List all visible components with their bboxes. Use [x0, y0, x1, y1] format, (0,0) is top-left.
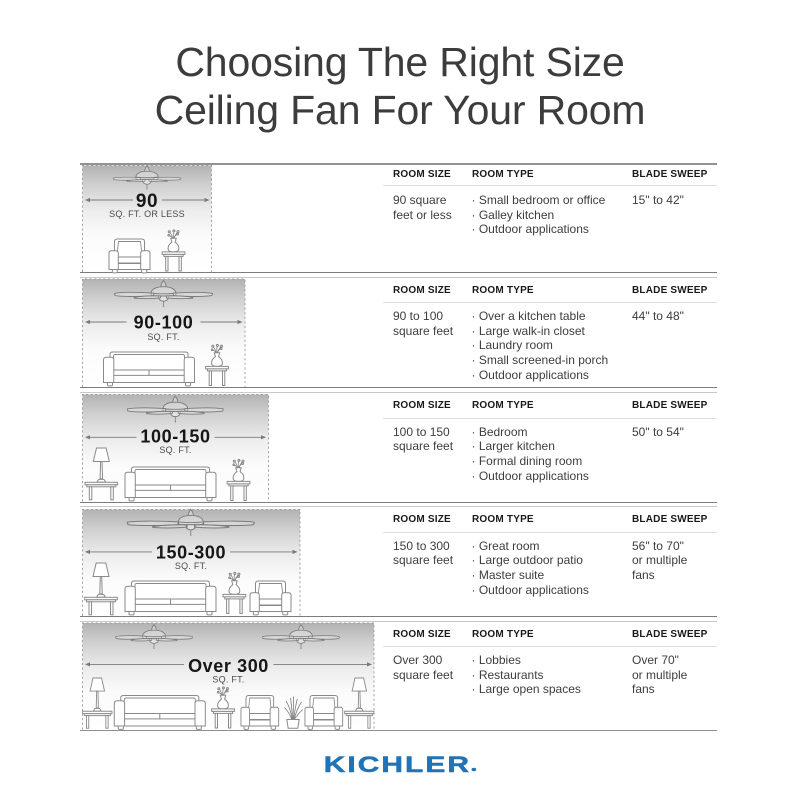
svg-text:Over 300: Over 300 [188, 656, 269, 676]
svg-text:SQ. FT.: SQ. FT. [147, 332, 179, 342]
svg-text:SQ. FT.: SQ. FT. [175, 561, 207, 571]
svg-text:150-300: 150-300 [156, 543, 226, 563]
svg-text:SQ. FT.: SQ. FT. [212, 675, 244, 685]
svg-text:SQ. FT.: SQ. FT. [159, 445, 191, 455]
svg-text:100-150: 100-150 [140, 427, 210, 447]
svg-text:90-100: 90-100 [134, 313, 194, 333]
svg-text:SQ. FT. OR LESS: SQ. FT. OR LESS [109, 209, 185, 219]
